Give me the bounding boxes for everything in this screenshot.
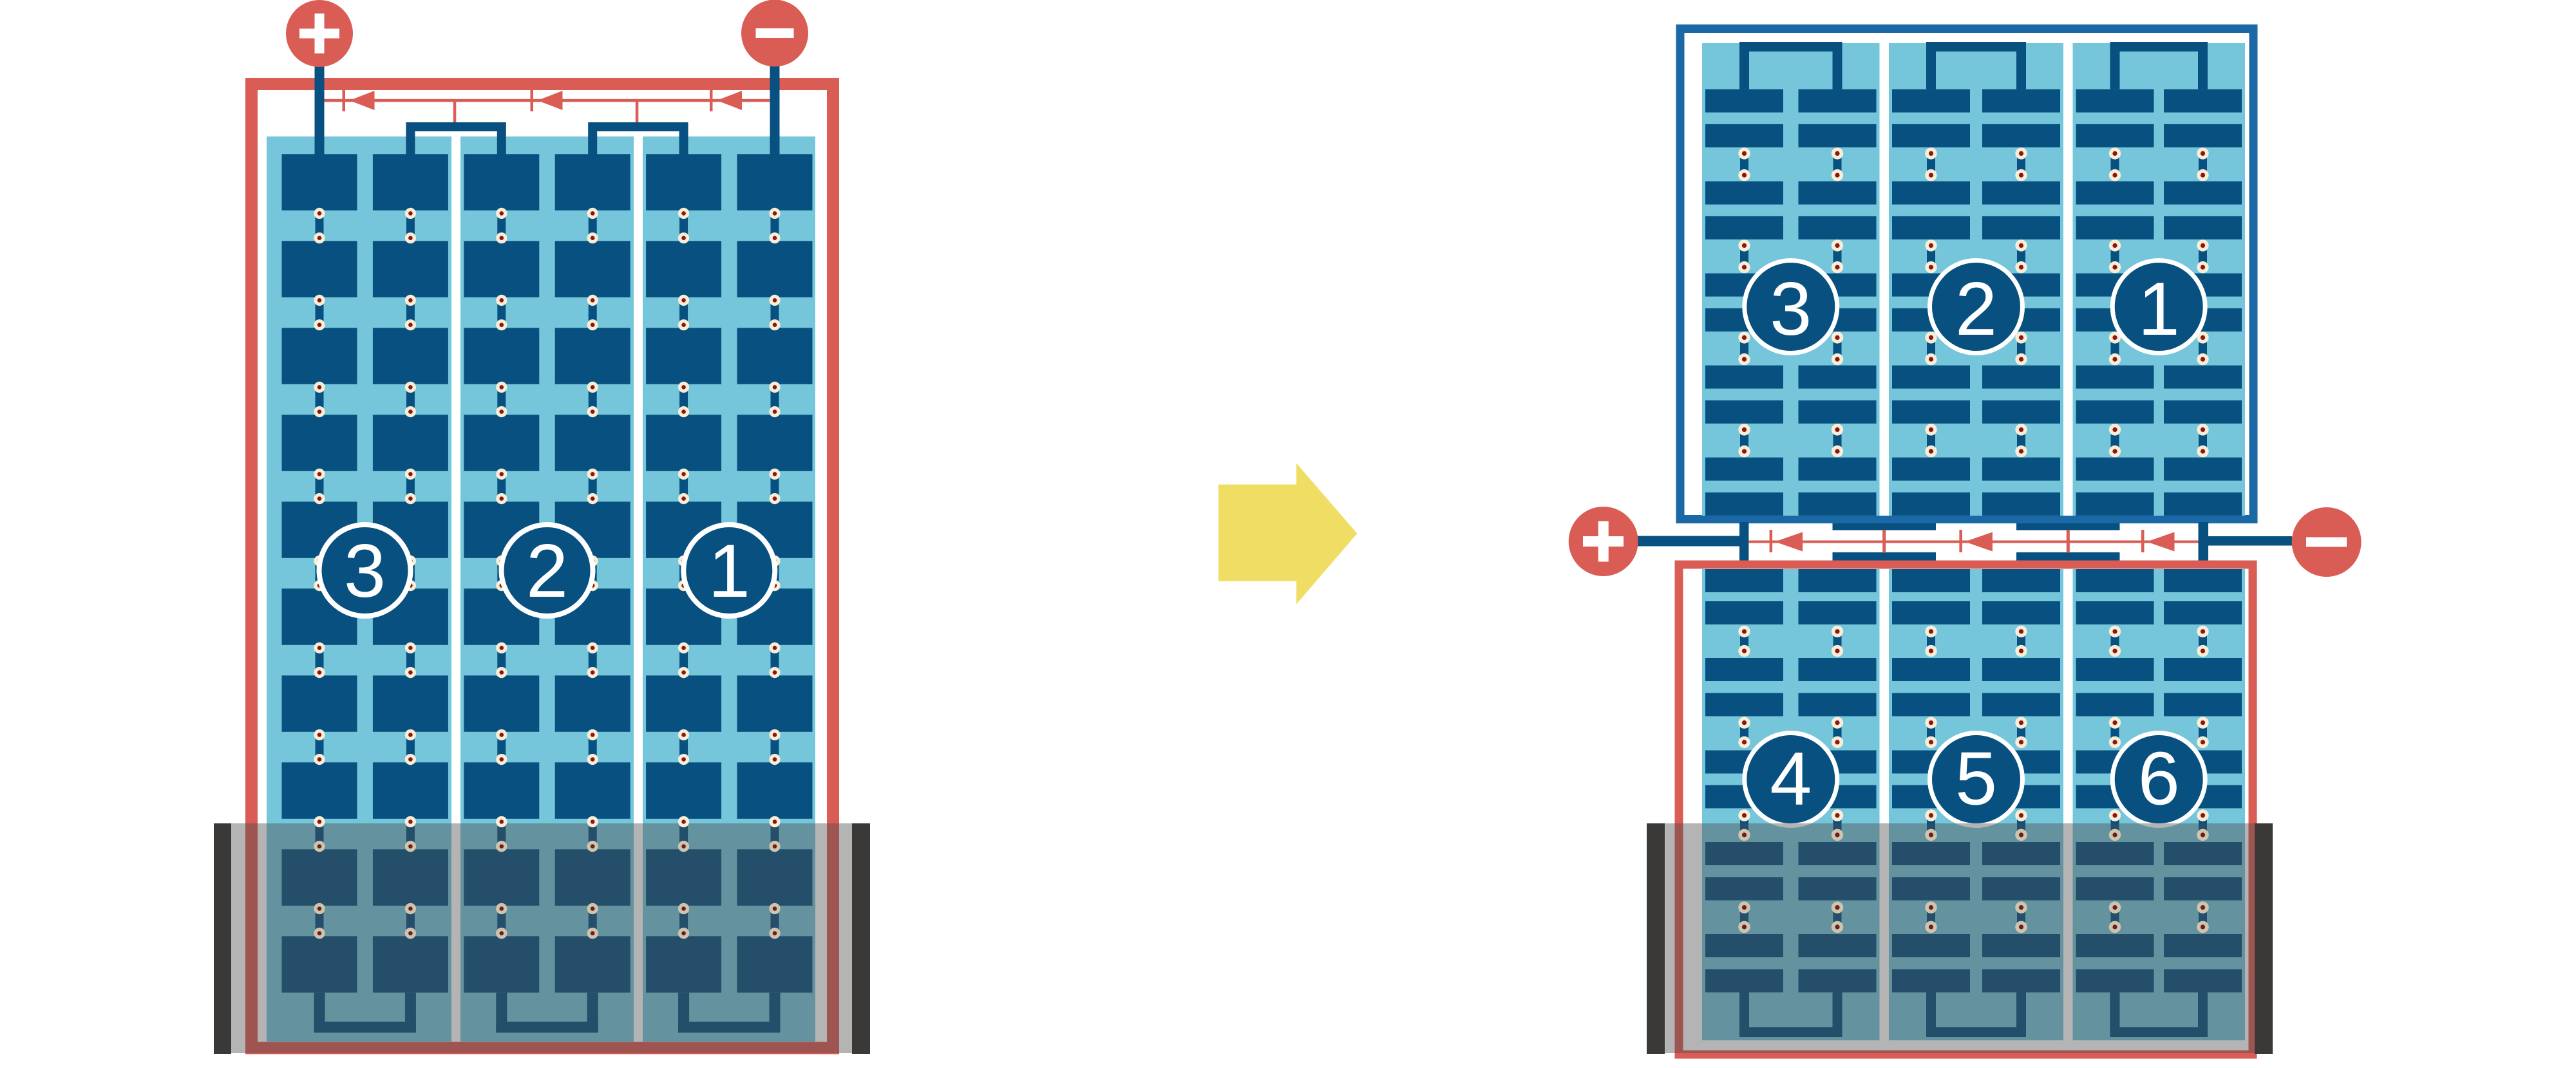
- svg-text:3: 3: [1770, 267, 1812, 351]
- svg-text:1: 1: [708, 529, 750, 613]
- svg-text:3: 3: [344, 529, 386, 613]
- svg-text:5: 5: [1955, 736, 1997, 821]
- svg-text:2: 2: [1955, 267, 1997, 351]
- svg-text:2: 2: [526, 529, 568, 613]
- svg-text:6: 6: [2138, 736, 2180, 821]
- svg-text:4: 4: [1770, 736, 1812, 821]
- svg-text:1: 1: [2138, 267, 2180, 351]
